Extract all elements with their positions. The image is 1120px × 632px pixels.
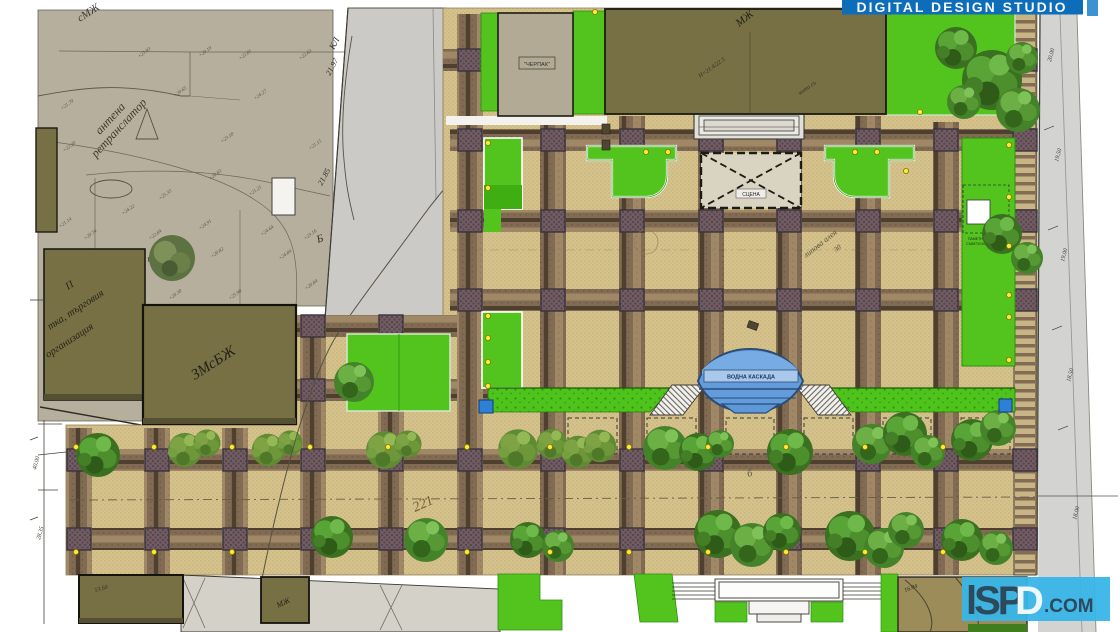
svg-text:"ЧЕРПАК": "ЧЕРПАК" bbox=[524, 62, 550, 68]
svg-text:D: D bbox=[1015, 579, 1043, 623]
svg-text:DIGITAL DESIGN STUDIO: DIGITAL DESIGN STUDIO bbox=[856, 0, 1067, 15]
svg-text:ВОДНА КАСКАДА: ВОДНА КАСКАДА bbox=[727, 375, 775, 381]
svg-text:.COM: .COM bbox=[1044, 596, 1094, 617]
svg-text:СЦЕНА: СЦЕНА bbox=[742, 192, 760, 198]
